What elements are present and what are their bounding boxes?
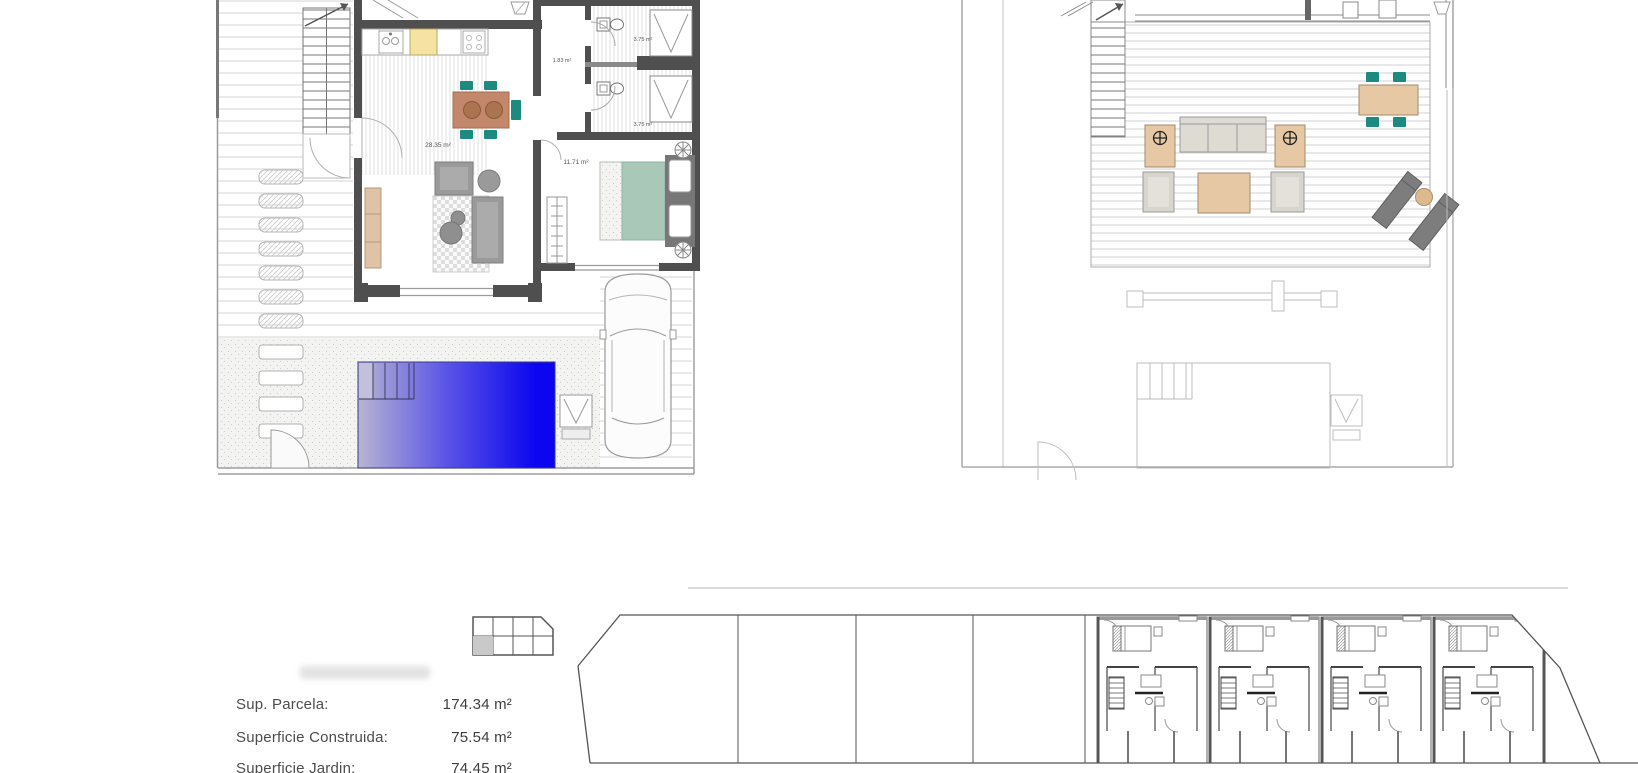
room-area-label: 3.75 m²	[634, 37, 653, 43]
terrace-slider-window	[400, 289, 493, 296]
dining-set	[453, 81, 521, 139]
lounger-table	[1416, 189, 1433, 206]
key-plan-highlight-cell	[473, 636, 493, 655]
upper-floor-cutoff	[354, 0, 529, 20]
summary-value: 75.54 m²	[451, 729, 512, 746]
cutoff-sink-symbol	[1434, 2, 1450, 14]
coffee-table	[440, 222, 462, 244]
kitchen-counter	[362, 29, 488, 55]
umbrella-base-icon	[1154, 132, 1167, 145]
outdoor-shower	[560, 395, 592, 439]
townhouse-unit	[1433, 616, 1543, 763]
bedroom-door-swing	[541, 140, 561, 160]
townhouse-unit	[1321, 616, 1431, 763]
stove	[463, 31, 485, 53]
counter-worktop	[410, 29, 437, 55]
key-plan	[473, 617, 553, 655]
outdoor-sofa	[1180, 117, 1266, 152]
room-area-label: 11.71 m²	[563, 159, 589, 166]
dining-chair	[460, 130, 473, 139]
double-bed	[622, 162, 665, 240]
dining-chair	[1366, 72, 1379, 82]
townhouse-unit	[1097, 616, 1207, 763]
dining-chair	[484, 81, 497, 90]
townhouse-unit	[1209, 616, 1319, 763]
dining-table	[1359, 85, 1418, 115]
area-summary: Sup. Parcela: 174.34 m² Superficie Const…	[222, 658, 522, 773]
faded-watermark	[300, 666, 430, 679]
dining-chair	[460, 81, 473, 90]
plant-icon	[675, 242, 691, 258]
coffee-table	[1198, 173, 1250, 213]
summary-row: Superficie Jardin: 74.45 m²	[236, 760, 512, 773]
planter	[1343, 2, 1358, 18]
gate-swing	[1038, 442, 1076, 480]
site-plan	[448, 578, 1638, 773]
pool-platform	[359, 363, 373, 399]
parcel-divider-lines	[738, 615, 1085, 763]
room-area-label: 28.35 m²	[425, 142, 451, 149]
summary-label: Superficie Construida:	[236, 729, 388, 746]
summary-row: Superficie Construida: 75.54 m²	[236, 729, 512, 746]
pouf	[478, 170, 500, 192]
dining-chair	[484, 130, 497, 139]
side-mirror	[670, 330, 676, 339]
plant-icon	[675, 142, 691, 158]
pillow	[669, 205, 691, 237]
pool-outline	[1137, 363, 1330, 468]
ground-floor-plan: 28.35 m² 1.83 m² 3.75 m² 3.75 m² 11.71 m…	[213, 0, 705, 486]
sideboard	[365, 188, 381, 268]
townhouse-row	[1097, 616, 1546, 763]
dining-bench	[511, 100, 521, 120]
exterior-staircase	[303, 3, 350, 178]
summary-value: 174.34 m²	[443, 696, 512, 713]
pillow	[669, 160, 691, 192]
dining-chair	[1393, 72, 1406, 82]
umbrella-base-icon	[1284, 132, 1297, 145]
car-top-view	[600, 274, 676, 458]
summary-label: Superficie Jardin:	[236, 760, 356, 773]
dining-chair	[1393, 117, 1406, 127]
bedroom-window	[575, 266, 659, 271]
dining-chair	[1366, 117, 1379, 127]
pool	[358, 362, 555, 468]
summary-label: Sup. Parcela:	[236, 696, 329, 713]
room-area-label: 1.83 m²	[553, 58, 572, 64]
planter	[1379, 0, 1396, 18]
roof-staircase	[1061, 0, 1125, 137]
bed-blanket	[600, 162, 622, 240]
summary-row: Sup. Parcela: 174.34 m²	[236, 696, 512, 713]
living-room-set	[365, 162, 503, 272]
solarium-plan	[946, 0, 1460, 480]
room-area-label: 3.75 m²	[634, 122, 653, 128]
summary-value: 74.45 m²	[451, 760, 512, 773]
side-mirror	[600, 330, 606, 339]
plan-sheet: 28.35 m² 1.83 m² 3.75 m² 3.75 m² 11.71 m…	[0, 0, 1638, 773]
